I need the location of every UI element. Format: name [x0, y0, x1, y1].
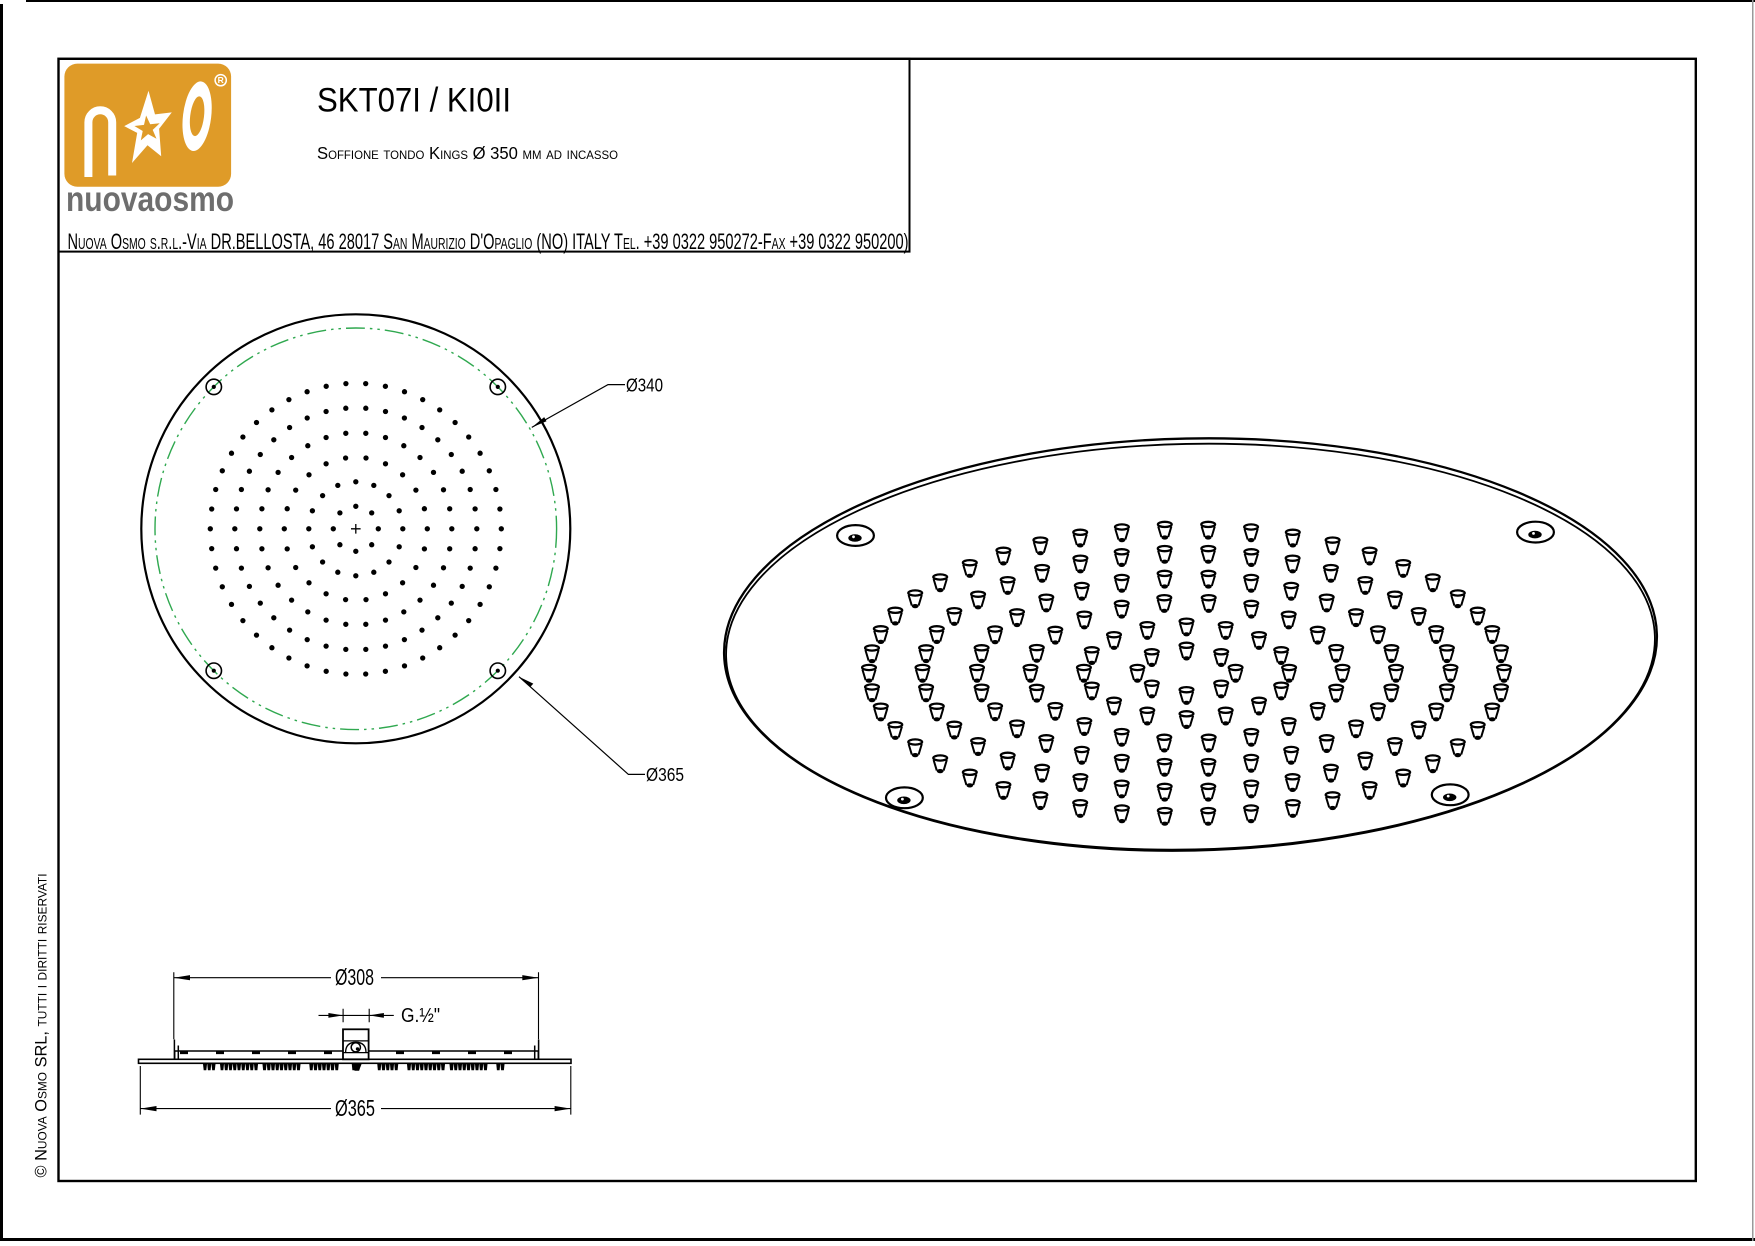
svg-text:Soffione tondo Kings Ø 350 mm: Soffione tondo Kings Ø 350 mm ad incasso: [317, 143, 618, 163]
svg-text:R: R: [218, 75, 224, 85]
svg-text:Nuova Osmo s.r.l.-Via DR.BELLO: Nuova Osmo s.r.l.-Via DR.BELLOSTA, 46 28…: [68, 229, 909, 254]
svg-text:© Nuova Osmo SRL, tutti i diri: © Nuova Osmo SRL, tutti i diritti riserv…: [33, 874, 51, 1178]
svg-text:Ø340: Ø340: [626, 374, 663, 395]
svg-text:G.½": G.½": [401, 1005, 440, 1027]
svg-text:nuovaosmo: nuovaosmo: [66, 180, 234, 219]
svg-text:Ø308: Ø308: [335, 964, 374, 990]
svg-text:Ø365: Ø365: [335, 1095, 375, 1121]
svg-text:SKT07I / KI0II: SKT07I / KI0II: [317, 82, 511, 120]
svg-text:Ø365: Ø365: [646, 764, 684, 785]
